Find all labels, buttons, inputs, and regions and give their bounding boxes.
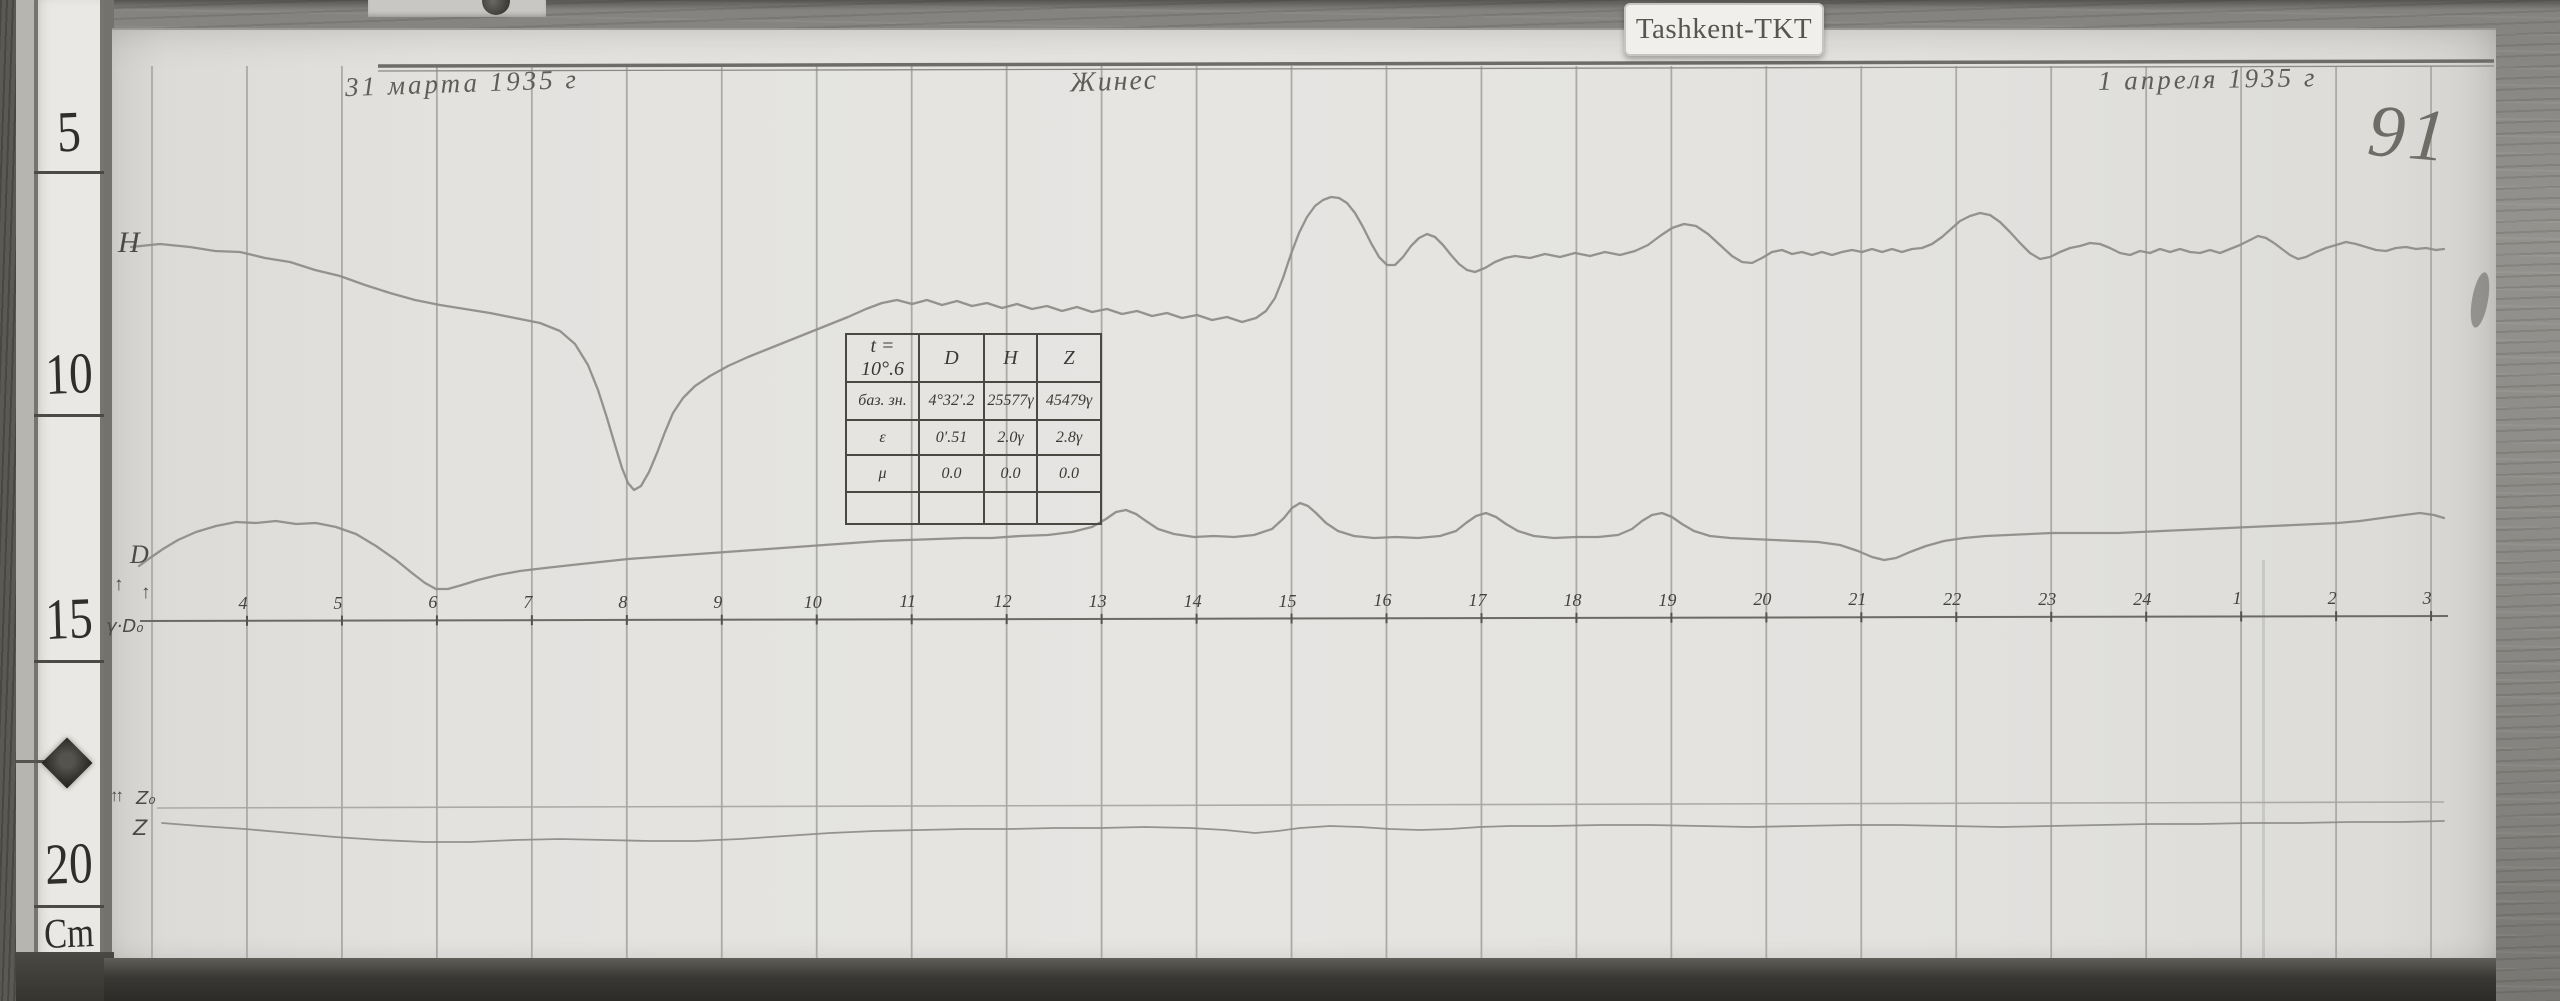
table-header-cell: t = 10°.6 [846, 334, 919, 382]
table-cell: 0.0 [984, 455, 1037, 492]
table-cell: 0.0 [1037, 455, 1101, 492]
hour-label-16: 16 [1361, 590, 1405, 611]
hour-axis-labels: 456789101112131415161718192021222324123 [0, 0, 2560, 1001]
hour-label-24: 24 [2120, 589, 2164, 610]
hour-label-9: 9 [696, 592, 740, 613]
table-cell: 2.0γ [984, 420, 1037, 455]
table-cell: 25577γ [984, 382, 1037, 420]
table-cell [846, 492, 919, 524]
table-cell [919, 492, 984, 524]
hour-label-1: 1 [2215, 588, 2259, 609]
hour-label-8: 8 [601, 592, 645, 613]
hour-label-22: 22 [1930, 589, 1974, 610]
hour-label-15: 15 [1266, 591, 1310, 612]
hour-label-18: 18 [1550, 590, 1594, 611]
hour-label-13: 13 [1076, 591, 1120, 612]
table-cell: 4°32′.2 [919, 382, 984, 420]
hour-label-2: 2 [2310, 588, 2354, 609]
table-header-cell: D [919, 334, 984, 382]
table-cell: 45479γ [1037, 382, 1101, 420]
hour-label-23: 23 [2025, 589, 2069, 610]
hour-label-19: 19 [1645, 590, 1689, 611]
hour-label-7: 7 [506, 592, 550, 613]
table-cell: 0′.51 [919, 420, 984, 455]
table-header-cell: H [984, 334, 1037, 382]
hour-label-10: 10 [791, 592, 835, 613]
table-cell: μ [846, 455, 919, 492]
hour-label-17: 17 [1455, 590, 1499, 611]
hour-label-4: 4 [221, 593, 265, 614]
hour-label-14: 14 [1171, 591, 1215, 612]
base-values-table: t = 10°.6 D H Z баз. зн. 4°32′.2 25577γ … [845, 333, 1102, 525]
table-cell [984, 492, 1037, 524]
hour-label-3: 3 [2405, 588, 2449, 609]
table-cell [1037, 492, 1101, 524]
table-cell: 2.8γ [1037, 420, 1101, 455]
table-cell: ε [846, 420, 919, 455]
hour-label-6: 6 [411, 592, 455, 613]
hour-label-11: 11 [886, 591, 930, 612]
hour-label-12: 12 [981, 591, 1025, 612]
table-header-cell: Z [1037, 334, 1101, 382]
hour-label-5: 5 [316, 593, 360, 614]
table-cell: 0.0 [919, 455, 984, 492]
table-cell: баз. зн. [846, 382, 919, 420]
hour-label-21: 21 [1835, 589, 1879, 610]
hour-label-20: 20 [1740, 589, 1784, 610]
